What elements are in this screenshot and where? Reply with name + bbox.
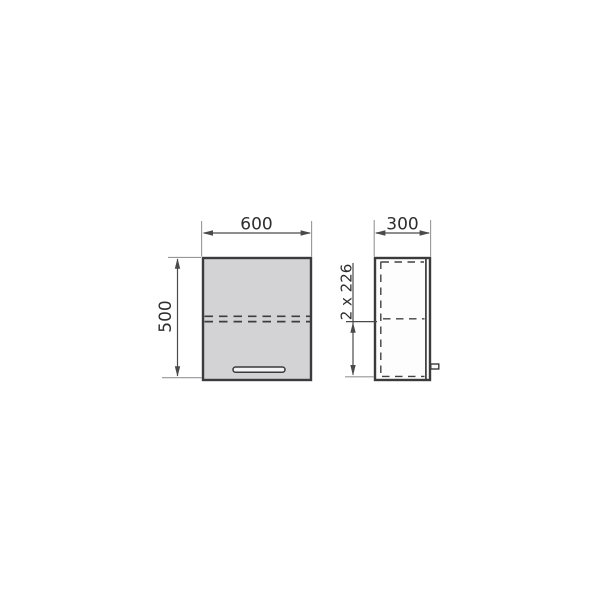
- depth-dimension: 300: [374, 215, 430, 257]
- side-handle-tab: [431, 364, 439, 369]
- fold-section-dimension: 2 x 226: [338, 263, 378, 377]
- front-panel-rect: [203, 258, 311, 380]
- technical-drawing-canvas: 600 500: [0, 0, 603, 603]
- depth-dim-label: 300: [386, 215, 418, 235]
- cabinet-dimension-drawing: 600 500: [0, 0, 603, 603]
- front-handle: [233, 367, 285, 372]
- height-dimension: 500: [156, 257, 202, 377]
- cabinet-front-view: [203, 258, 311, 380]
- depth-arrow-left-icon: [375, 230, 386, 235]
- depth-arrow-right-icon: [420, 230, 431, 235]
- width-dim-label: 600: [240, 215, 272, 235]
- fold-arrow-bottom-icon: [350, 365, 355, 376]
- height-arrow-top-icon: [175, 258, 180, 269]
- fold-sections-label: 2 x 226: [338, 264, 356, 321]
- cabinet-side-view: [375, 258, 439, 380]
- width-arrow-left-icon: [202, 230, 213, 235]
- width-dimension: 600: [202, 215, 312, 257]
- height-arrow-bottom-icon: [175, 366, 180, 377]
- fold-arrow-top-icon: [350, 322, 355, 333]
- height-dim-label: 500: [156, 300, 176, 332]
- width-arrow-right-icon: [301, 230, 312, 235]
